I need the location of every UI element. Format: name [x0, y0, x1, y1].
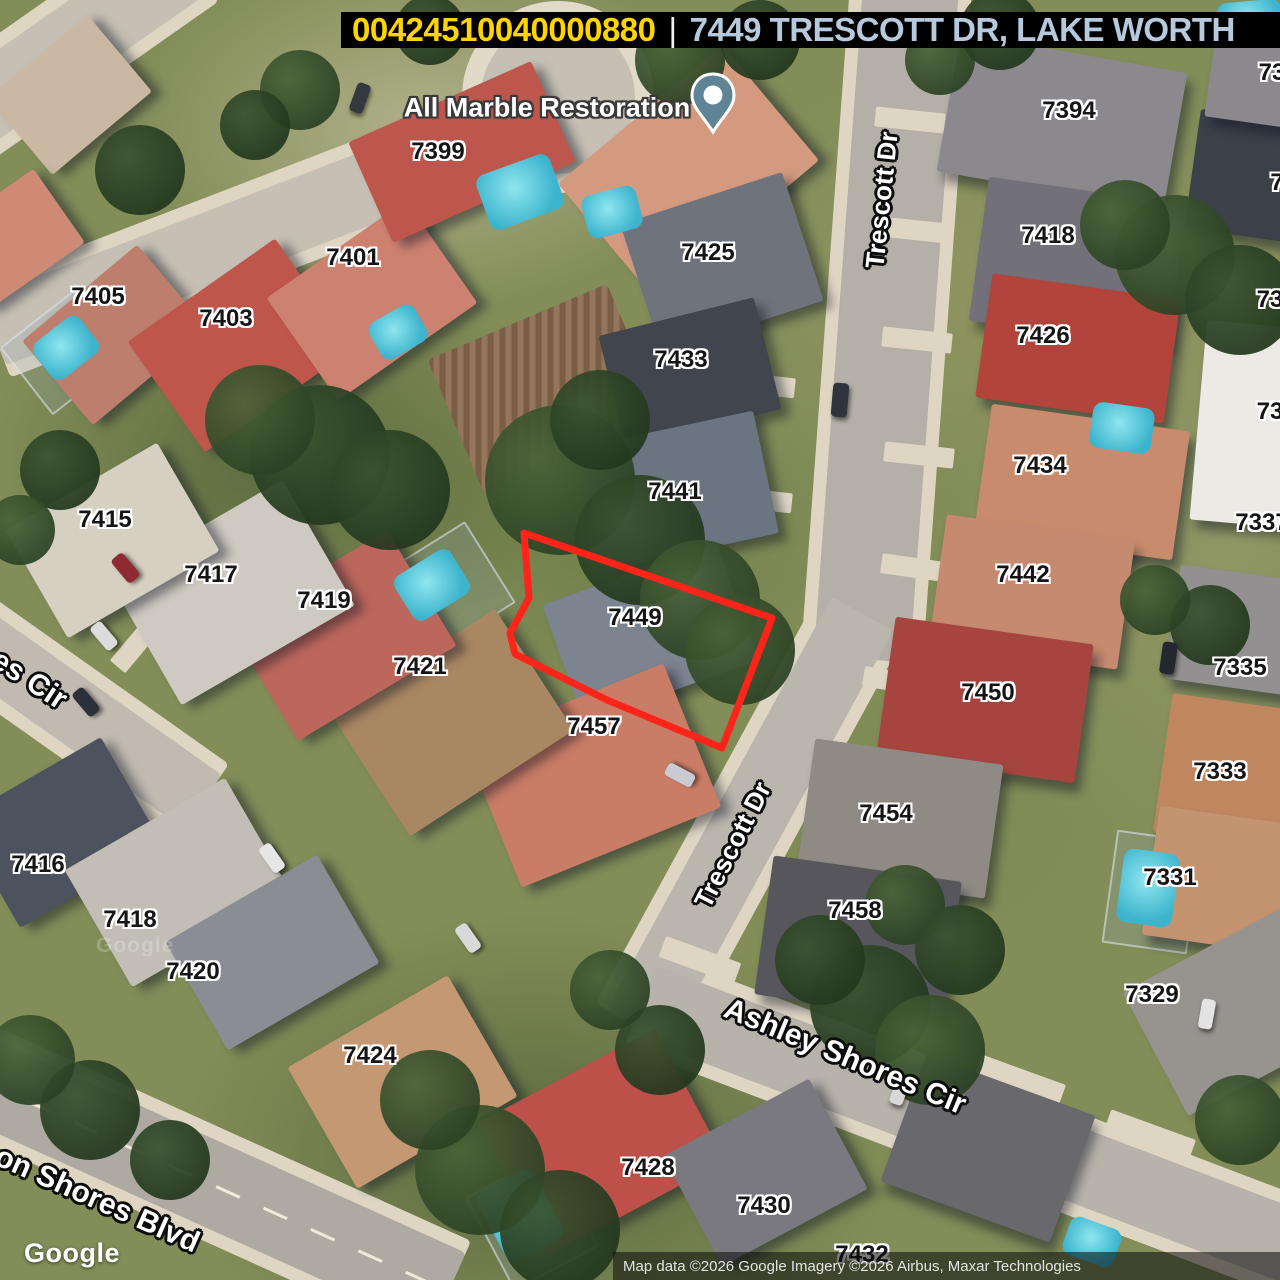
- map-viewport[interactable]: Google 739974017403740574157417741974217…: [0, 0, 1280, 1280]
- house-number-label: 7401: [326, 244, 379, 272]
- house-number-label: 7450: [961, 679, 1014, 707]
- poi-label-text: All Marble Restoration: [404, 93, 691, 124]
- map-label-layer: 7399740174037405741574177419742174167418…: [0, 0, 1280, 1280]
- house-number-label: 7416: [11, 851, 64, 879]
- house-number-label: 7442: [996, 561, 1049, 589]
- header-bar: 00424510040000880 | 7449 TRESCOTT DR, LA…: [341, 12, 1280, 48]
- house-number-label: 73: [1257, 398, 1280, 426]
- house-number-label: 7449: [608, 604, 661, 632]
- attribution-text: Map data ©2026 Google Imagery ©2026 Airb…: [623, 1258, 1081, 1275]
- house-number-label: 7433: [654, 346, 707, 374]
- house-number-label: 73: [1259, 59, 1280, 87]
- house-number-label: 7333: [1193, 758, 1246, 786]
- house-number-label: 7426: [1016, 322, 1069, 350]
- house-number-label: 7394: [1042, 97, 1095, 125]
- house-number-label: 7421: [393, 653, 446, 681]
- house-number-label: 7428: [621, 1154, 674, 1182]
- poi-pin-icon[interactable]: [689, 72, 737, 136]
- house-number-label: 7335: [1213, 654, 1266, 682]
- house-number-label: 7441: [648, 478, 701, 506]
- house-number-label: 7457: [567, 713, 620, 741]
- house-number-label: 7458: [828, 897, 881, 925]
- house-number-label: 73: [1257, 286, 1280, 314]
- house-number-label: 7399: [411, 138, 464, 166]
- house-number-label: 7331: [1143, 864, 1196, 892]
- house-number-label: 7: [1270, 169, 1280, 197]
- attribution-bar: Map data ©2026 Google Imagery ©2026 Airb…: [613, 1252, 1280, 1280]
- house-number-label: 7434: [1013, 452, 1066, 480]
- house-number-label: 7329: [1125, 981, 1178, 1009]
- street-name-label: es Cir: [0, 643, 73, 717]
- house-number-label: 7430: [737, 1192, 790, 1220]
- street-name-label: Trescott Dr: [688, 777, 778, 913]
- google-logo[interactable]: Google: [24, 1238, 120, 1269]
- house-number-label: 7418: [1021, 222, 1074, 250]
- header-parcel-id: 00424510040000880: [352, 12, 656, 48]
- house-number-label: 7415: [78, 506, 131, 534]
- street-name-label: Trescott Dr: [859, 130, 904, 270]
- house-number-label: 7425: [681, 239, 734, 267]
- house-number-label: 7420: [166, 958, 219, 986]
- house-number-label: 7403: [199, 305, 252, 333]
- house-number-label: 7417: [184, 561, 237, 589]
- header-separator: |: [669, 12, 677, 48]
- header-address: 7449 TRESCOTT DR, LAKE WORTH: [690, 12, 1235, 48]
- house-number-label: 7337: [1235, 509, 1280, 537]
- house-number-label: 7419: [297, 587, 350, 615]
- street-name-label: Ashley Shores Cir: [719, 992, 971, 1122]
- house-number-label: 7454: [859, 800, 912, 828]
- house-number-label: 7418: [103, 906, 156, 934]
- house-number-label: 7424: [343, 1042, 396, 1070]
- house-number-label: 7405: [71, 283, 124, 311]
